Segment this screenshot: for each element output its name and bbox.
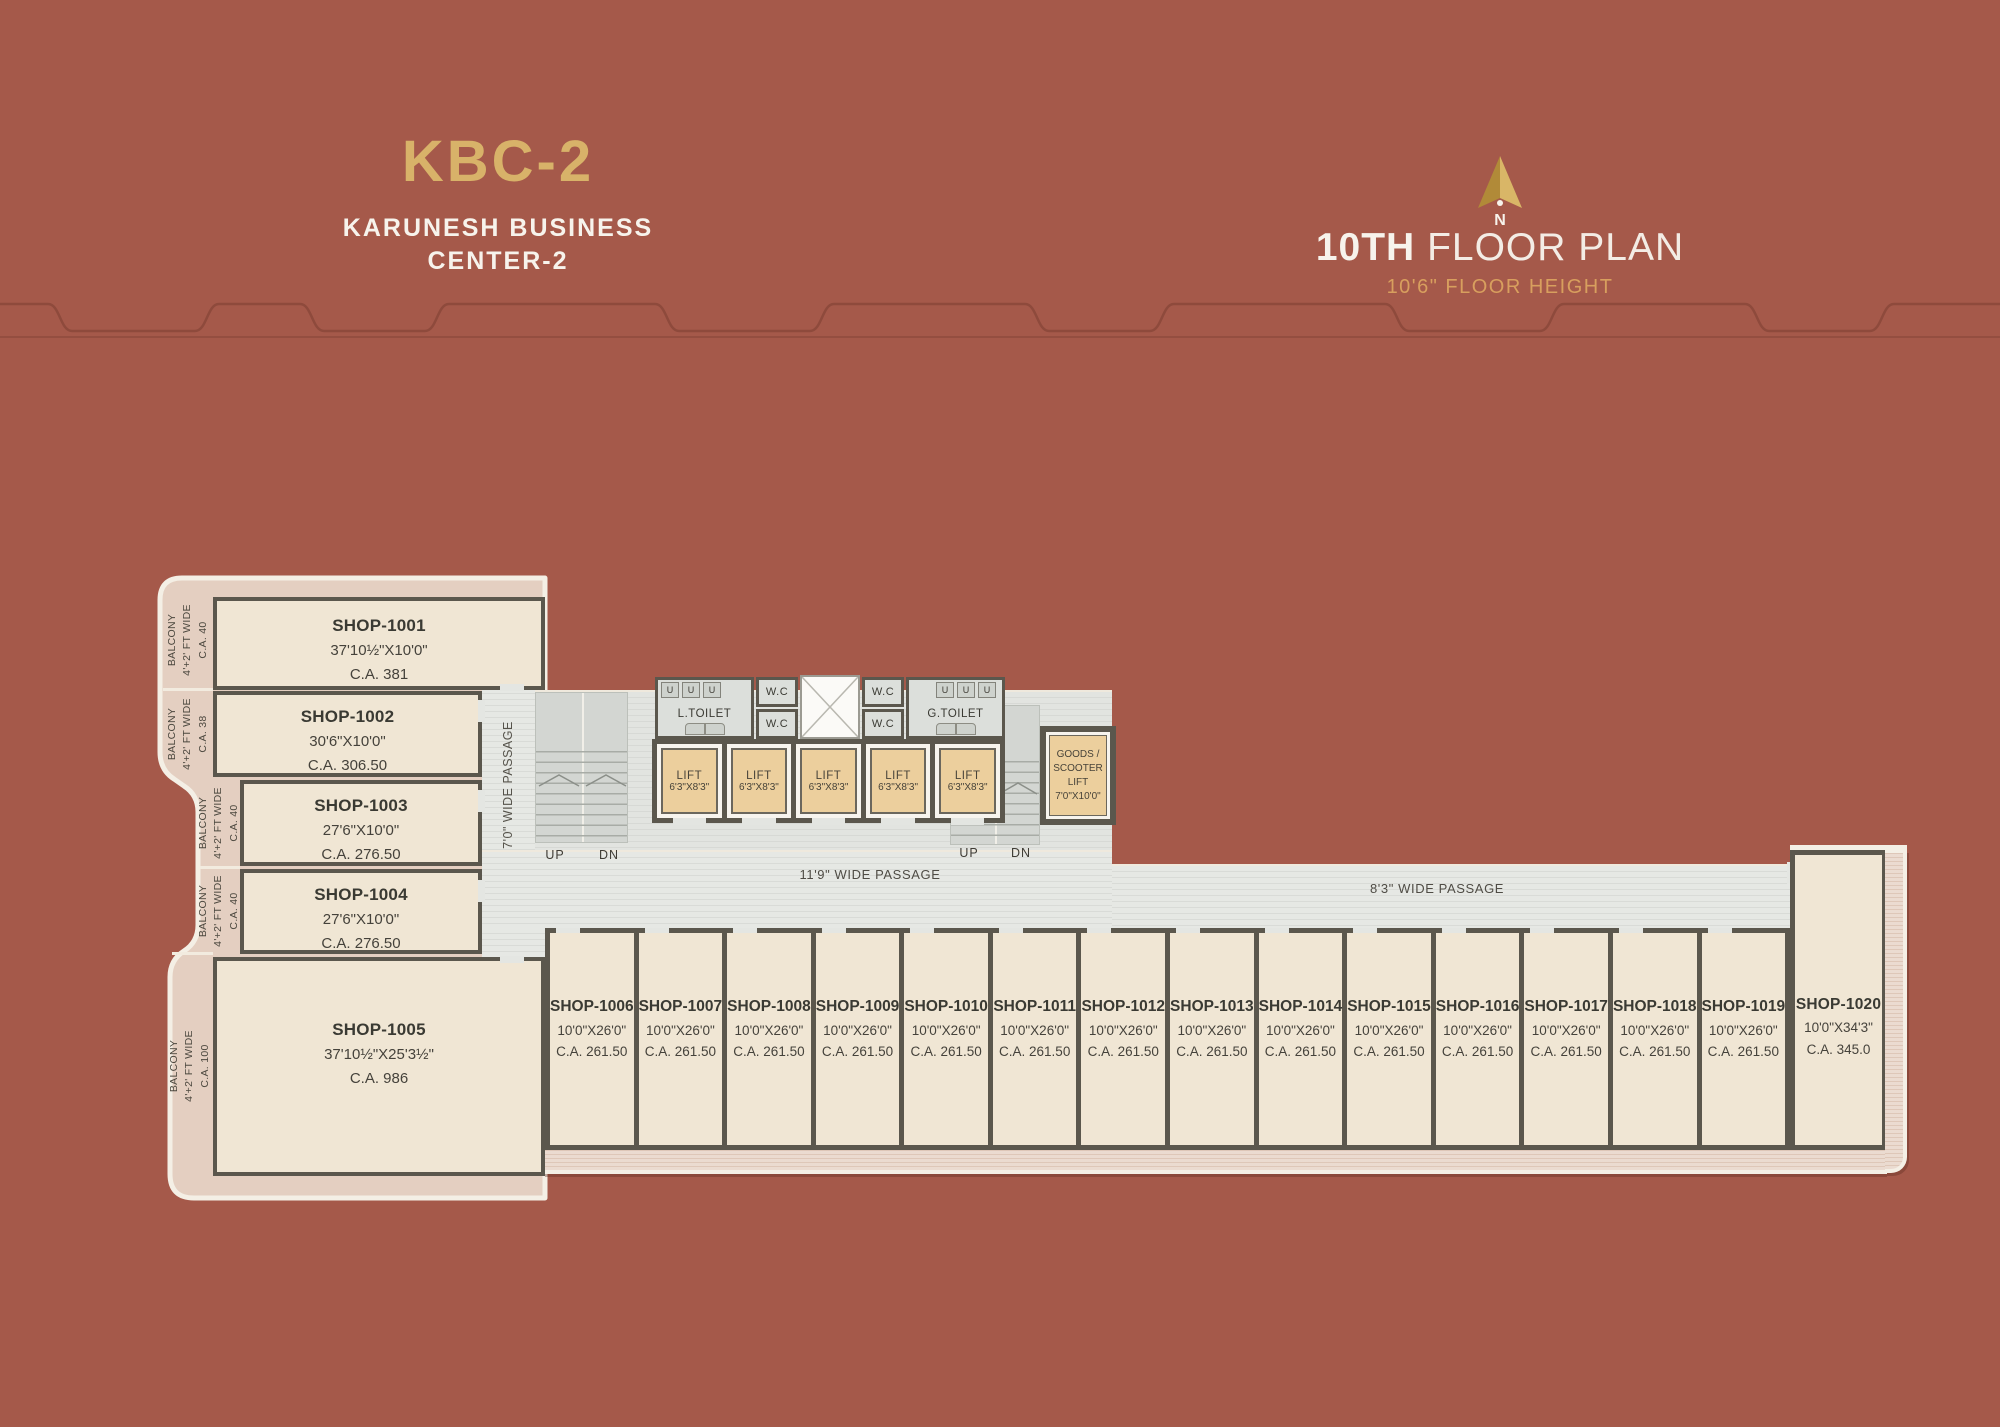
shop-unit: SHOP-101710'0"X26'0"C.A. 261.50 xyxy=(1524,933,1613,1145)
door-opening xyxy=(478,790,485,812)
balcony-divider xyxy=(172,952,213,955)
lift-cell: LIFT6'3"X8'3" xyxy=(866,744,931,818)
lift-cell: LIFT6'3"X8'3" xyxy=(935,744,1000,818)
shop-unit: SHOP-101510'0"X26'0"C.A. 261.50 xyxy=(1347,933,1436,1145)
shop-unit: SHOP-101910'0"X26'0"C.A. 261.50 xyxy=(1702,933,1791,1145)
balcony-divider xyxy=(200,866,240,869)
duct-shaft xyxy=(800,675,860,739)
shop-unit: SHOP-100230'6"X10'0"C.A. 306.50 xyxy=(213,691,482,777)
shop-unit: SHOP-100910'0"X26'0"C.A. 261.50 xyxy=(816,933,905,1145)
wc-cell: W.C xyxy=(862,709,904,739)
right-passage xyxy=(1112,864,1790,930)
shop-unit: SHOP-100810'0"X26'0"C.A. 261.50 xyxy=(727,933,816,1145)
gents-toilet-label: G.TOILET xyxy=(909,708,1002,720)
shop-unit: SHOP-100537'10½"X25'3½"C.A. 986 xyxy=(213,957,545,1176)
urinal-icon: U xyxy=(957,682,975,698)
gents-toilet: U U U G.TOILET xyxy=(906,677,1005,739)
staircase-left xyxy=(535,692,628,843)
goods-lift-line: GOODS / xyxy=(1057,748,1100,762)
urinal-icon: U xyxy=(682,682,700,698)
shop-unit: SHOP-100137'10½"X10'0"C.A. 381 xyxy=(213,597,545,690)
shop-unit: SHOP-100710'0"X26'0"C.A. 261.50 xyxy=(639,933,728,1145)
shop-unit: SHOP-100610'0"X26'0"C.A. 261.50 xyxy=(545,933,639,1145)
balcony-label: BALCONY4'+2' FT WIDEC.A. 100 xyxy=(162,1021,218,1111)
lift-cell: LIFT6'3"X8'3" xyxy=(727,744,792,818)
stair-right-up-label: UP xyxy=(946,846,992,860)
floor-plan-page: KBC-2 KARUNESH BUSINESS CENTER-2 N 10TH … xyxy=(0,0,2000,1427)
shop-unit: SHOP-101210'0"X26'0"C.A. 261.50 xyxy=(1081,933,1170,1145)
right-balcony-strip xyxy=(1885,850,1907,1173)
stair-right-dn-label: DN xyxy=(998,846,1044,860)
goods-lift-line: SCOOTER xyxy=(1053,762,1102,776)
wc-cell: W.C xyxy=(756,677,798,707)
balcony-label: BALCONY4'+2' FT WIDEC.A. 40 xyxy=(191,866,247,956)
ladies-toilet: U U U L.TOILET xyxy=(655,677,754,739)
right-passage-label: 8'3" WIDE PASSAGE xyxy=(1327,881,1547,896)
urinal-icon: U xyxy=(661,682,679,698)
shop-unit: SHOP-101110'0"X26'0"C.A. 261.50 xyxy=(993,933,1082,1145)
main-passage xyxy=(482,850,1112,930)
door-opening xyxy=(500,684,524,691)
shop-unit: SHOP-101010'0"X26'0"C.A. 261.50 xyxy=(904,933,993,1145)
shop-unit: SHOP-101810'0"X26'0"C.A. 261.50 xyxy=(1613,933,1702,1145)
balcony-label: BALCONY4'+2' FT WIDEC.A. 38 xyxy=(160,689,216,779)
goods-lift-line: LIFT xyxy=(1068,776,1089,790)
stair-left-dn-label: DN xyxy=(586,848,632,862)
stair-treads xyxy=(536,742,627,842)
lift-cell: LIFT6'3"X8'3" xyxy=(657,744,722,818)
vertical-passage-label: 7'0" WIDE PASSAGE xyxy=(501,710,515,860)
goods-lift-line: 7'0"X10'0" xyxy=(1055,790,1100,804)
urinal-icon: U xyxy=(978,682,996,698)
balcony-label: BALCONY4'+2' FT WIDEC.A. 40 xyxy=(191,778,247,868)
bottom-balcony-strip xyxy=(545,1150,1887,1174)
bottom-shops-row: SHOP-100610'0"X26'0"C.A. 261.50 SHOP-100… xyxy=(545,928,1790,1150)
urinal-row: U U U xyxy=(936,682,999,698)
shop-unit: SHOP-101410'0"X26'0"C.A. 261.50 xyxy=(1259,933,1348,1145)
ladies-toilet-label: L.TOILET xyxy=(658,708,751,720)
urinal-icon: U xyxy=(936,682,954,698)
shop-unit: SHOP-1020 10'0"X34'3" C.A. 345.0 xyxy=(1790,850,1887,1150)
wash-basin xyxy=(685,723,725,735)
door-opening xyxy=(500,956,524,963)
shop-unit: SHOP-101610'0"X26'0"C.A. 261.50 xyxy=(1436,933,1525,1145)
stair-break-line xyxy=(536,770,629,790)
door-opening xyxy=(478,880,485,902)
main-passage-label: 11'9" WIDE PASSAGE xyxy=(760,867,980,882)
shop-unit: SHOP-101310'0"X26'0"C.A. 261.50 xyxy=(1170,933,1259,1145)
wc-cell: W.C xyxy=(862,677,904,707)
shop-unit: SHOP-100427'6"X10'0"C.A. 276.50 xyxy=(240,869,482,954)
wash-basin xyxy=(936,723,976,735)
passage-corner-patch xyxy=(482,928,545,958)
wc-cell: W.C xyxy=(756,709,798,739)
urinal-icon: U xyxy=(703,682,721,698)
stair-left-up-label: UP xyxy=(532,848,578,862)
urinal-row: U U U xyxy=(661,682,724,698)
shop-unit: SHOP-100327'6"X10'0"C.A. 276.50 xyxy=(240,780,482,866)
lift-cell: LIFT6'3"X8'3" xyxy=(796,744,861,818)
balcony-divider xyxy=(163,688,213,691)
balcony-label: BALCONY4'+2' FT WIDEC.A. 40 xyxy=(160,595,216,685)
goods-scooter-lift: GOODS / SCOOTER LIFT 7'0"X10'0" xyxy=(1040,726,1116,825)
door-opening xyxy=(478,700,485,722)
lift-bank: LIFT6'3"X8'3" LIFT6'3"X8'3" LIFT6'3"X8'3… xyxy=(652,739,1005,823)
